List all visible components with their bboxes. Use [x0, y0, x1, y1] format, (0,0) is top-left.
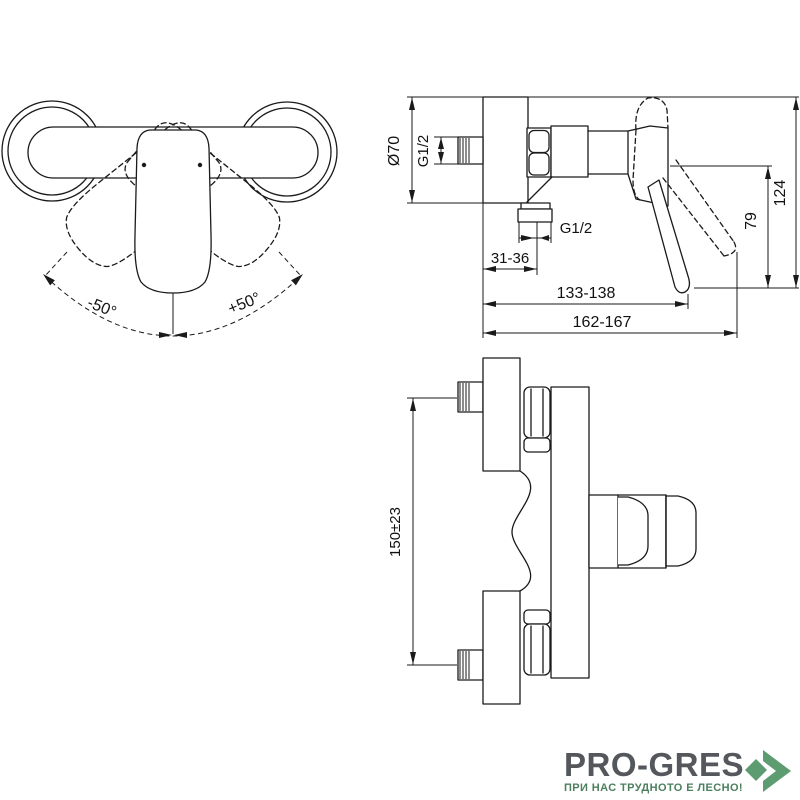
front-body-s-curve — [512, 471, 531, 591]
left-petal-extension — [45, 252, 67, 276]
top-view: -50° +50° — [2, 101, 337, 338]
front-cartridge-dome — [618, 497, 648, 565]
handle-dot-left — [142, 163, 146, 167]
outlet-flange — [521, 203, 550, 209]
rotation-right-label: +50° — [226, 290, 263, 318]
body-spout-chamfer — [527, 177, 552, 202]
dim-label-overall-depth: 162-167 — [573, 314, 632, 331]
dim-label-flange-diameter: Ø70 — [386, 136, 403, 166]
lever-alt-edge-upper — [676, 160, 734, 242]
handle-dot-right — [198, 163, 202, 167]
dim-label-handle-height: 79 — [743, 212, 760, 230]
arc-arrowhead-right — [291, 274, 303, 285]
bottom-union-nut — [524, 624, 550, 675]
valve-body — [551, 126, 588, 177]
outlet-body — [518, 209, 552, 222]
front-body-plate — [551, 387, 589, 678]
brand-tagline: ПРИ НАС ТРУДНОТО Е ЛЕСНО! — [564, 782, 743, 794]
top-union-nut — [524, 387, 550, 438]
dim-label-overall-height: 124 — [772, 180, 789, 207]
logo-chevron-right-icon — [763, 750, 791, 792]
lever-handle-alt-top — [636, 98, 668, 130]
inlet-nipple — [458, 137, 483, 164]
top-wall-pipe — [458, 382, 483, 412]
dim-label-outlet-thread: G1/2 — [560, 220, 593, 237]
brand-name: PRO-GRES — [564, 746, 744, 783]
arc-center-arrow-right — [174, 332, 187, 338]
dim-label-wall-to-outlet: 31-36 — [491, 250, 529, 267]
bottom-escutcheon — [483, 591, 520, 704]
technical-drawing-canvas: -50° +50° — [0, 0, 800, 800]
lever-alt-tip — [724, 242, 736, 256]
bottom-wall-pipe — [458, 650, 483, 680]
front-view: 150±23 — [387, 358, 696, 704]
side-view: Ø70 G1/2 G1/2 31-36 133-138 162-167 124 — [386, 97, 799, 338]
bottom-locknut — [524, 610, 550, 624]
dim-label-connection-centers: 150±23 — [387, 507, 404, 557]
dim-label-inlet-thread: G1/2 — [415, 135, 432, 168]
front-extension-lines — [407, 398, 457, 665]
arc-center-arrow-left — [159, 332, 172, 338]
handle-top-outline — [135, 130, 211, 293]
top-escutcheon — [483, 358, 520, 471]
wall-plate — [483, 97, 528, 203]
lever-handle — [648, 180, 689, 293]
dim-label-wall-to-handle: 133-138 — [557, 285, 616, 302]
brand-logo: PRO-GRES ПРИ НАС ТРУДНОТО Е ЛЕСНО! — [564, 746, 791, 794]
logo-diamond-icon — [745, 759, 767, 781]
front-handle — [666, 496, 696, 566]
right-petal-extension — [279, 252, 301, 276]
top-locknut — [524, 438, 550, 452]
technical-drawing-page: -50° +50° — [0, 0, 800, 800]
